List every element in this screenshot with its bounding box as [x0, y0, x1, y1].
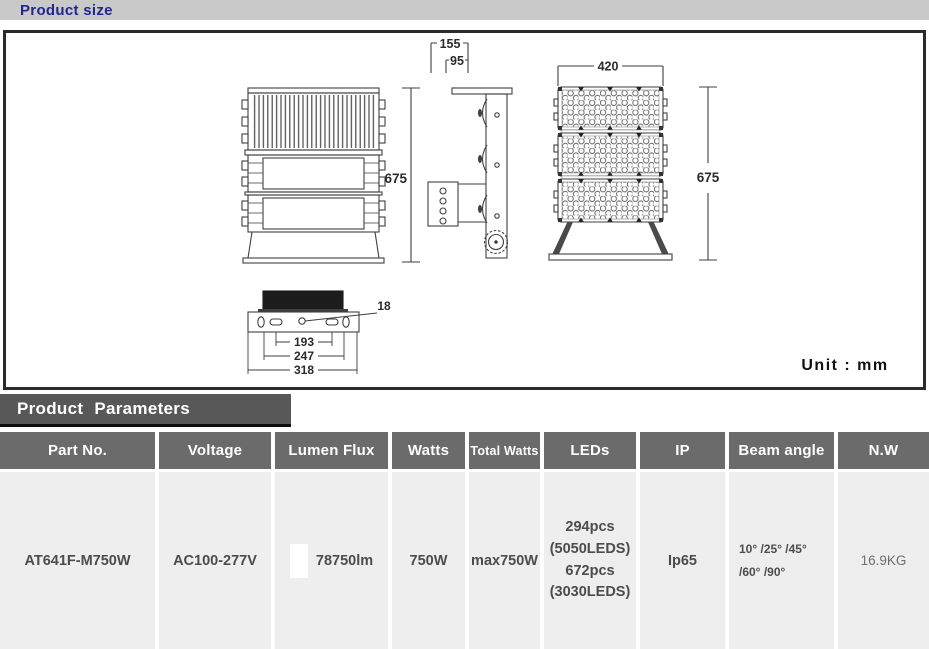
- cell-lumen-flux: 78750lm: [273, 471, 390, 649]
- product-size-title: Product size: [0, 2, 113, 19]
- col-header-beam-angle: Beam angle: [727, 432, 836, 471]
- col-header-voltage: Voltage: [157, 432, 273, 471]
- technical-drawings: 675 155 95: [6, 33, 923, 387]
- cell-total-watts: max750W: [467, 471, 542, 649]
- product-parameters-header-bar: Product Parameters: [0, 394, 291, 427]
- dim-mount-hole-label: 18: [377, 299, 391, 313]
- cell-leds: 294pcs (5050LEDS) 672pcs (3030LEDS): [542, 471, 638, 649]
- product-sheet-page: Product size: [0, 0, 929, 649]
- product-size-diagram-box: 675 155 95: [3, 30, 926, 390]
- col-header-leds: LEDs: [542, 432, 638, 471]
- table-header-row: Part No. Voltage Lumen Flux Watts Total …: [0, 432, 929, 471]
- cell-watts: 750W: [390, 471, 467, 649]
- cell-beam-angle: 10° /25° /45° /60° /90°: [727, 471, 836, 649]
- col-header-part-no: Part No.: [0, 432, 157, 471]
- unit-label: Unit : mm: [801, 357, 888, 374]
- col-header-lumen-flux: Lumen Flux: [273, 432, 390, 471]
- dim-mount-inner-label: 193: [294, 335, 314, 349]
- dim-side-total-depth-label: 155: [440, 37, 461, 51]
- col-header-watts: Watts: [390, 432, 467, 471]
- cell-voltage: AC100-277V: [157, 471, 273, 649]
- bottom-view-drawing: 18 193 247 318: [248, 291, 391, 377]
- product-size-header-bar: Product size: [0, 0, 929, 20]
- col-header-nw: N.W: [836, 432, 929, 471]
- dim-front-width-label: 420: [598, 60, 619, 74]
- front-view-drawing: 420: [549, 60, 720, 261]
- lumen-flux-value: 78750lm: [316, 553, 373, 569]
- lumen-flux-swatch: [290, 544, 308, 578]
- dim-mount-mid-label: 247: [294, 349, 314, 363]
- dim-side-body-depth-label: 95: [450, 54, 464, 68]
- cell-part-no: AT641F-M750W: [0, 471, 157, 649]
- back-view-drawing: 675: [242, 88, 420, 263]
- dim-back-height-label: 675: [384, 171, 407, 186]
- parameters-table: Part No. Voltage Lumen Flux Watts Total …: [0, 432, 929, 649]
- col-header-ip: IP: [638, 432, 727, 471]
- cell-nw: 16.9KG: [836, 471, 929, 649]
- side-view-drawing: 155 95: [428, 37, 512, 258]
- table-data-row: AT641F-M750W AC100-277V 78750lm 750W max…: [0, 471, 929, 649]
- col-header-total-watts: Total Watts: [467, 432, 542, 471]
- product-parameters-title: Product Parameters: [0, 399, 190, 419]
- dim-mount-outer-label: 318: [294, 363, 314, 377]
- cell-ip: Ip65: [638, 471, 727, 649]
- dim-front-height-label: 675: [697, 170, 720, 185]
